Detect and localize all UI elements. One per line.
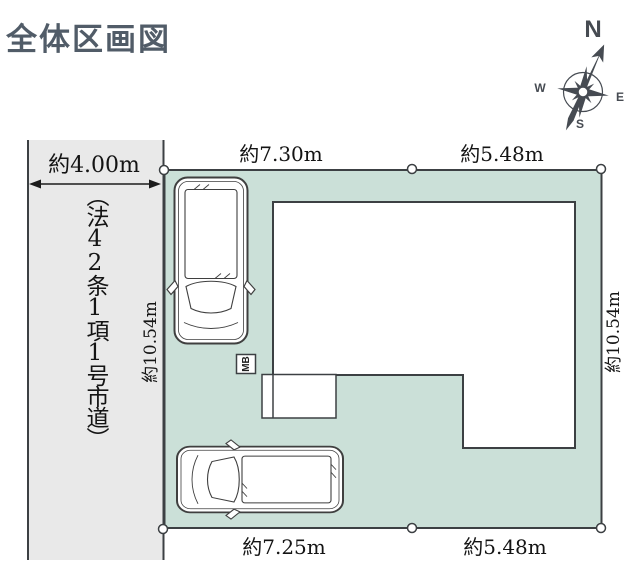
boundary-marker <box>597 524 606 533</box>
meter-box-label: MB <box>234 352 258 376</box>
boundary-marker <box>408 524 417 533</box>
dimension-top-right: 約5.48m <box>427 140 577 164</box>
dimension-right-side: 約10.54m <box>600 274 622 390</box>
compass-west-label: W <box>530 80 550 96</box>
parked-car-horizontal <box>177 440 343 519</box>
compass-north-label: N <box>577 16 609 44</box>
site-plan-page: 全体区画図 <box>0 0 640 579</box>
boundary-marker <box>597 165 606 174</box>
compass-east-label: E <box>610 89 630 105</box>
boundary-marker <box>408 165 417 174</box>
dimension-left-side: 約10.54m <box>137 284 159 400</box>
entrance-porch <box>262 375 336 419</box>
dimension-top-left: 約7.30m <box>206 140 356 164</box>
dimension-bottom-left: 約7.25m <box>209 533 359 557</box>
boundary-marker <box>159 525 168 534</box>
dimension-bottom-right: 約5.48m <box>430 533 580 557</box>
boundary-marker <box>160 166 169 175</box>
parked-car-vertical <box>167 178 255 344</box>
compass-south-label: S <box>570 116 590 132</box>
road-name-label: （法42条1項1号市道） <box>74 184 116 448</box>
road-width-label: 約4.00m <box>28 150 160 176</box>
